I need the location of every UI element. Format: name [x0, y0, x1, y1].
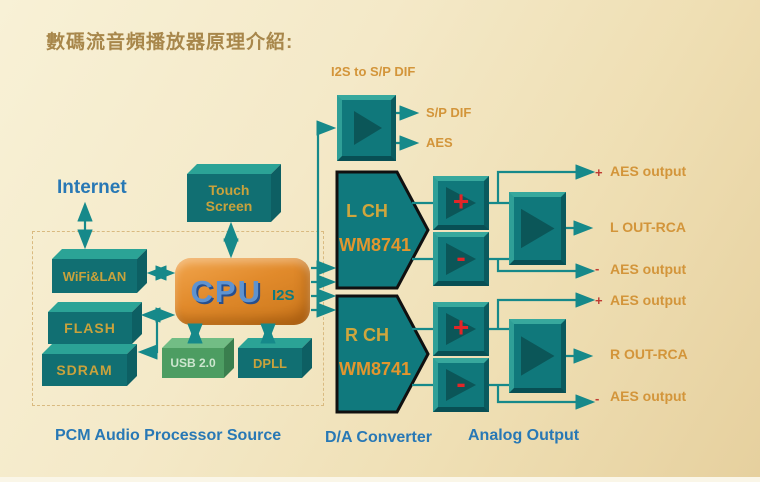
line-l-aes-plus	[498, 172, 592, 203]
line-r-aes-plus	[498, 300, 592, 329]
connector-lines	[0, 0, 760, 482]
line-cpu-sdram	[141, 315, 157, 352]
line-l-aes-minus	[498, 259, 592, 271]
slide-canvas: 數碼流音頻播放器原理介紹: Internet WiFi&LAN FLASH SD…	[0, 0, 760, 482]
slide-bottom-edge	[0, 477, 760, 482]
line-r-aes-minus	[498, 385, 592, 402]
